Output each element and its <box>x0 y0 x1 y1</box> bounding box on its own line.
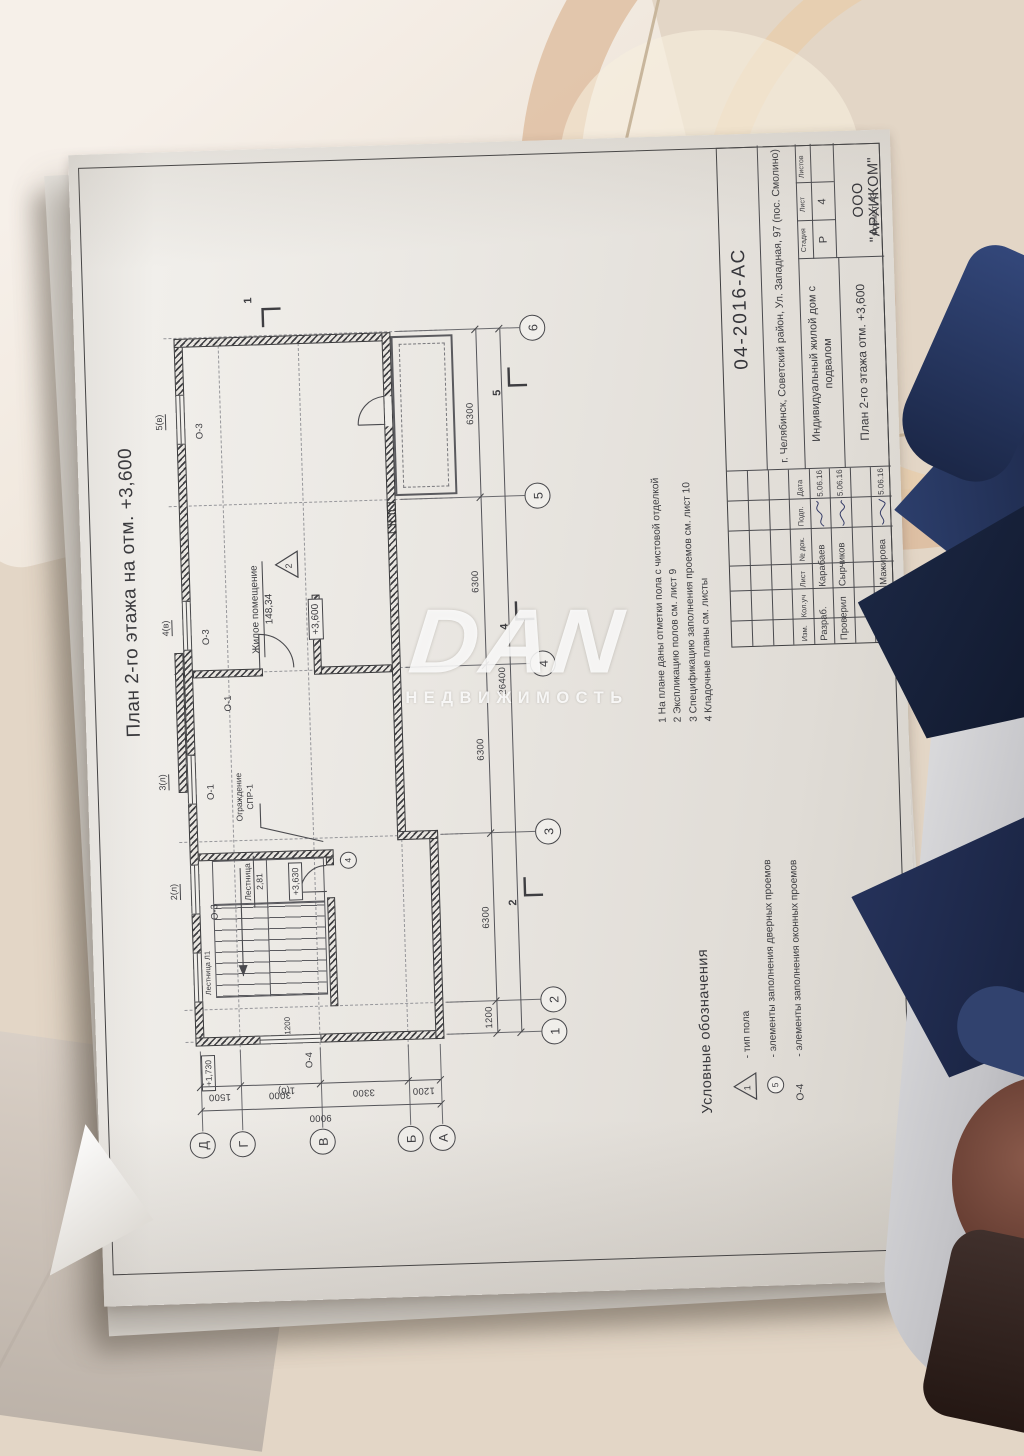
grid-line <box>838 258 846 468</box>
grid-line <box>796 181 834 183</box>
window-type-label: О-3 <box>194 423 205 439</box>
col-header: Подп. <box>796 506 806 526</box>
grid-line <box>810 144 815 259</box>
grid-line <box>795 144 806 469</box>
object-address: г. Челябинск, Советский район, Ул. Запад… <box>769 147 791 465</box>
person-name: Сырчиков <box>836 542 848 586</box>
stage-label: Стадия <box>800 228 808 252</box>
dim-label: 1200 <box>483 987 496 1047</box>
person-name: Мажирова <box>877 539 889 585</box>
opening-mark: 4(в) <box>160 620 172 636</box>
dim-label: 3300 <box>334 1086 394 1099</box>
opening-mark: 5(в) <box>154 414 166 430</box>
company-name: ООО "АРХИКОМ" <box>849 142 885 258</box>
living-room-label: Жилое помещение 148,34 <box>248 561 277 658</box>
col-header: Кол.уч <box>799 595 809 618</box>
legend-window-symbol: О-4 <box>795 1083 807 1100</box>
sheet-label: Лист <box>799 197 806 212</box>
opening-mark: 3(л) <box>157 774 170 791</box>
railing-line1: Ограждение <box>233 773 245 822</box>
signature <box>832 499 849 527</box>
room-name: Жилое помещение <box>249 565 263 654</box>
role: Проверил <box>838 596 850 640</box>
dim-label: 6300 <box>480 887 493 947</box>
signature <box>812 500 829 528</box>
railing-line2: СПР-1 <box>244 784 255 810</box>
level-mark: +3,600 <box>308 599 324 640</box>
col-header: № док. <box>797 537 807 561</box>
stage-value: Р <box>817 220 830 258</box>
window-type-label: О-4 <box>304 1052 315 1068</box>
date: 5.06.16 <box>815 470 825 497</box>
drawing-sheet: План 2-го этажа на отм. +3,600 <box>72 135 922 1300</box>
dim-label: 6300 <box>475 719 488 779</box>
date: 5.06.16 <box>876 468 886 495</box>
stair-room-label: Лестница 2,81 <box>242 855 266 908</box>
window-type-label: О-3 <box>201 629 212 645</box>
room-name: Лестница <box>242 863 253 901</box>
dim-label: 6300 <box>469 551 482 611</box>
floor-type-number: 2 <box>284 563 294 568</box>
window-type-label: О-1 <box>223 695 234 711</box>
legend-floor-symbol: 1 <box>733 1072 758 1101</box>
level-mark: +3,630 <box>288 862 303 900</box>
stair-id-label: Лестница Л1 <box>203 951 213 996</box>
col-header: Дата <box>795 480 805 497</box>
date: 5.06.16 <box>835 469 845 496</box>
grid-line <box>833 143 838 258</box>
opening-mark: 2(л) <box>169 884 182 901</box>
dim-label: 3000 <box>250 1089 310 1102</box>
col-header: Изм. <box>800 625 810 641</box>
col-header: Лист <box>798 571 808 588</box>
sheets-label: Листов <box>798 155 806 178</box>
paper-sheet: План 2-го этажа на отм. +3,600 <box>68 129 926 1306</box>
dim-label: 1500 <box>190 1090 250 1103</box>
floor-type-symbol: 2 <box>274 550 299 579</box>
legend-floor-text: - тип пола <box>741 1011 753 1059</box>
window-type-label: О-1 <box>205 784 216 800</box>
signature <box>873 498 890 526</box>
room-area: 2,81 <box>252 855 265 907</box>
dim-label: 6300 <box>464 384 477 444</box>
sheet-number: 4 <box>816 182 829 220</box>
stair-dim: 1200 <box>283 1017 293 1035</box>
person-name: Карабаев <box>816 544 828 587</box>
role: Разраб. <box>818 606 830 641</box>
project-name: Индивидуальный жилой дом с подвалом <box>804 261 839 466</box>
doc-number: 04-2016-АС <box>725 146 757 472</box>
window-type-label: О-3 <box>209 904 220 920</box>
dim-label: 1200 <box>394 1084 454 1097</box>
sheet-name: План 2-го этажа отм. +3,600 <box>852 260 872 464</box>
section-mark: 1 <box>242 297 254 303</box>
notes-block: 1 На плане даны отметки пола с чистовой … <box>648 476 717 723</box>
dim-total-label: 26400 <box>496 651 509 711</box>
format-label: Формат А3 <box>868 193 879 236</box>
railing-label: Ограждение СПР-1 <box>233 764 256 831</box>
grid-line <box>757 146 768 471</box>
legend-floor-number: 1 <box>742 1085 752 1090</box>
dim-total-label: 9000 <box>290 1111 350 1124</box>
